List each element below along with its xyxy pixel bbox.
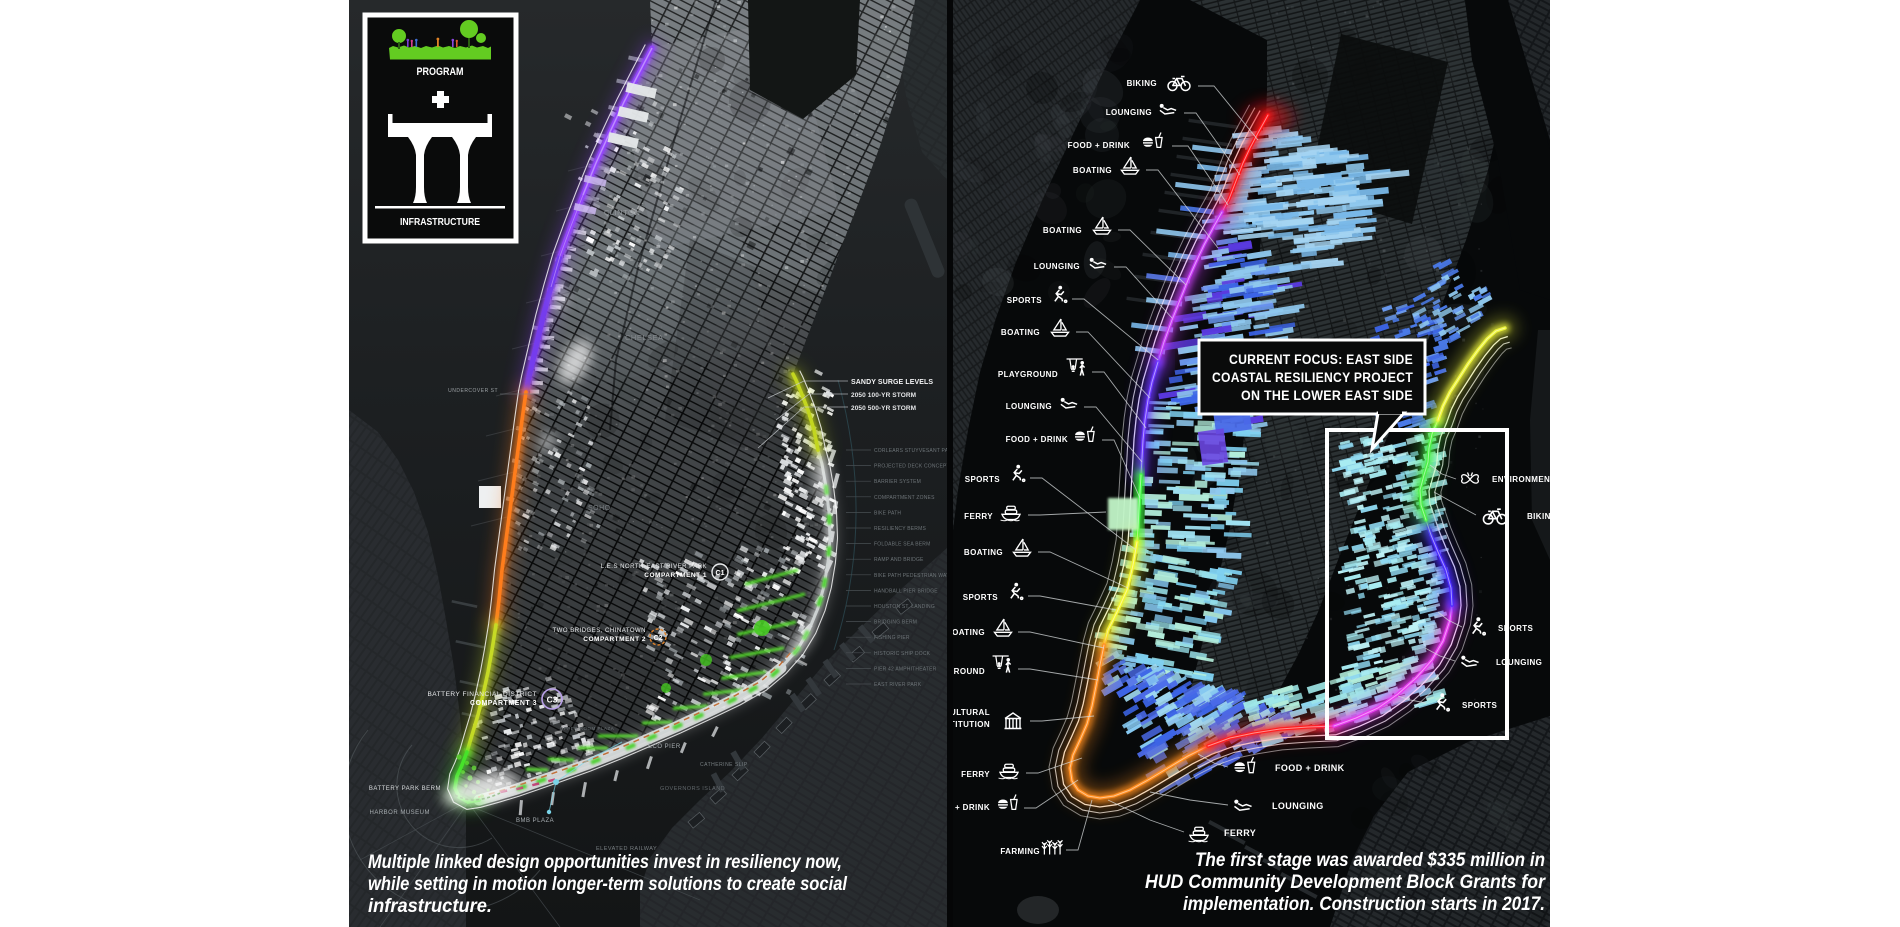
svg-text:COMPARTMENT 2: COMPARTMENT 2	[583, 636, 646, 643]
svg-text:BATTERY PARK BERM: BATTERY PARK BERM	[369, 786, 441, 792]
svg-text:CORLEARS STUYVESANT PARK: CORLEARS STUYVESANT PARK	[874, 448, 947, 454]
svg-text:SPORTS: SPORTS	[965, 475, 1001, 484]
svg-text:FERRY: FERRY	[961, 770, 990, 779]
svg-text:COMPARTMENT ZONES: COMPARTMENT ZONES	[874, 495, 935, 501]
svg-text:COASTAL RESILIENCY PROJECT: COASTAL RESILIENCY PROJECT	[1212, 370, 1413, 385]
svg-text:BOATING: BOATING	[1043, 226, 1082, 235]
svg-text:BOATING: BOATING	[1001, 328, 1040, 337]
svg-text:CURRENT FOCUS: EAST SIDE: CURRENT FOCUS: EAST SIDE	[1229, 352, 1413, 367]
svg-text:2050 500-YR STORM: 2050 500-YR STORM	[851, 405, 916, 412]
svg-text:LOUNGING: LOUNGING	[1496, 658, 1542, 667]
svg-text:BMB PLAZA: BMB PLAZA	[516, 818, 554, 824]
svg-text:SPORTS: SPORTS	[963, 593, 999, 602]
svg-text:BOATING: BOATING	[1073, 166, 1112, 175]
svg-text:C1: C1	[716, 570, 725, 577]
svg-text:CLINTON: CLINTON	[604, 208, 640, 217]
svg-text:Multiple linked design opportu: Multiple linked design opportunities inv…	[368, 851, 842, 873]
svg-text:FISHING PIER: FISHING PIER	[874, 635, 910, 641]
svg-text:FOOD + DRINK: FOOD + DRINK	[953, 803, 990, 812]
svg-text:C3: C3	[547, 695, 558, 705]
svg-text:FOOD + DRINK: FOOD + DRINK	[1006, 435, 1068, 444]
svg-text:BIKE PATH PEDESTRIAN WAY: BIKE PATH PEDESTRIAN WAY	[874, 573, 947, 579]
svg-text:FERRY: FERRY	[964, 512, 993, 521]
svg-text:while setting in motion longer: while setting in motion longer-term solu…	[368, 873, 847, 895]
svg-text:BRIDGING BERM: BRIDGING BERM	[874, 620, 917, 626]
svg-text:The first stage was awarded $3: The first stage was awarded $335 million…	[1195, 849, 1545, 871]
svg-text:SPORTS: SPORTS	[1498, 624, 1534, 633]
svg-text:SANDY SURGE LEVELS: SANDY SURGE LEVELS	[851, 379, 933, 386]
svg-text:HOUSTON ST. LANDING: HOUSTON ST. LANDING	[874, 604, 935, 610]
svg-text:BATTERY FINANCIAL DISTRICT: BATTERY FINANCIAL DISTRICT	[427, 691, 537, 698]
svg-text:COMPARTMENT 1: COMPARTMENT 1	[644, 572, 707, 579]
svg-text:PROGRAM: PROGRAM	[417, 66, 464, 78]
svg-text:BARRIER SYSTEM: BARRIER SYSTEM	[874, 479, 921, 485]
svg-text:LOUNGING: LOUNGING	[1006, 402, 1052, 411]
svg-text:LOUNGING: LOUNGING	[1272, 801, 1324, 811]
svg-text:CHELSEA: CHELSEA	[625, 333, 664, 342]
svg-text:BIKING: BIKING	[1527, 512, 1550, 521]
svg-text:SPORTS: SPORTS	[1007, 296, 1043, 305]
svg-text:UPPER ROOM PLAZA: UPPER ROOM PLAZA	[560, 726, 614, 731]
svg-text:BIKE PATH: BIKE PATH	[874, 510, 901, 516]
svg-text:INSTITUTION: INSTITUTION	[953, 720, 990, 729]
svg-text:implementation. Construction s: implementation. Construction starts in 2…	[1183, 893, 1545, 915]
svg-text:CULTURAL: CULTURAL	[953, 708, 990, 717]
svg-text:FERRY: FERRY	[1224, 828, 1256, 838]
svg-text:PLAYGROUND: PLAYGROUND	[998, 370, 1058, 379]
svg-text:TWO BRIDGES, CHINATOWN: TWO BRIDGES, CHINATOWN	[553, 628, 646, 634]
svg-text:LOUNGING: LOUNGING	[1034, 262, 1080, 271]
svg-text:LOUNGING: LOUNGING	[1106, 108, 1152, 117]
svg-text:SOHO: SOHO	[588, 505, 611, 512]
svg-text:RESILIENCY BERMS: RESILIENCY BERMS	[874, 526, 926, 532]
svg-text:FOOD + DRINK: FOOD + DRINK	[1275, 763, 1345, 773]
svg-text:PROJECTED DECK CONCEPT: PROJECTED DECK CONCEPT	[874, 464, 947, 470]
svg-text:UNDERCOVER ST: UNDERCOVER ST	[448, 388, 498, 394]
svg-text:EAST RIVER PARK: EAST RIVER PARK	[874, 682, 922, 688]
svg-text:PIER 42 AMPHITHEATER: PIER 42 AMPHITHEATER	[874, 666, 937, 672]
svg-text:RAMP AND BRIDGE: RAMP AND BRIDGE	[874, 557, 924, 563]
svg-text:FARMING: FARMING	[1000, 847, 1040, 856]
svg-text:COMPARTMENT 3: COMPARTMENT 3	[470, 700, 537, 707]
svg-text:HARBOR MUSEUM: HARBOR MUSEUM	[369, 810, 430, 816]
svg-text:BOATING: BOATING	[964, 548, 1003, 557]
svg-text:L.E.S NORTH-EAST RIVER PARK: L.E.S NORTH-EAST RIVER PARK	[601, 564, 707, 570]
svg-text:INFRASTRUCTURE: INFRASTRUCTURE	[400, 217, 480, 228]
svg-text:ENVIRONMENT: ENVIRONMENT	[1492, 475, 1550, 484]
svg-text:GOVERNORS ISLAND: GOVERNORS ISLAND	[660, 786, 725, 792]
svg-text:BIKING: BIKING	[1127, 79, 1157, 88]
svg-text:2050 100-YR STORM: 2050 100-YR STORM	[851, 392, 916, 399]
svg-text:BOATING: BOATING	[953, 628, 985, 637]
svg-text:infrastructure.: infrastructure.	[368, 895, 492, 917]
svg-text:FOLDABLE SEA BERM: FOLDABLE SEA BERM	[874, 542, 930, 548]
svg-text:HUD Community Development Bloc: HUD Community Development Block Grants f…	[1145, 871, 1546, 893]
svg-text:PLAYGROUND: PLAYGROUND	[953, 667, 985, 676]
svg-text:C2: C2	[654, 635, 663, 642]
svg-text:ON THE LOWER EAST SIDE: ON THE LOWER EAST SIDE	[1241, 388, 1413, 403]
svg-text:ECO PIER: ECO PIER	[648, 744, 681, 750]
svg-text:SPORTS: SPORTS	[1462, 701, 1498, 710]
svg-text:HANDBALL PIER BRIDGE: HANDBALL PIER BRIDGE	[874, 588, 938, 594]
svg-text:FOOD + DRINK: FOOD + DRINK	[1068, 141, 1130, 150]
svg-text:CATHERINE SLIP: CATHERINE SLIP	[700, 762, 748, 768]
svg-text:HISTORIC SHIP DOCK: HISTORIC SHIP DOCK	[874, 651, 931, 657]
